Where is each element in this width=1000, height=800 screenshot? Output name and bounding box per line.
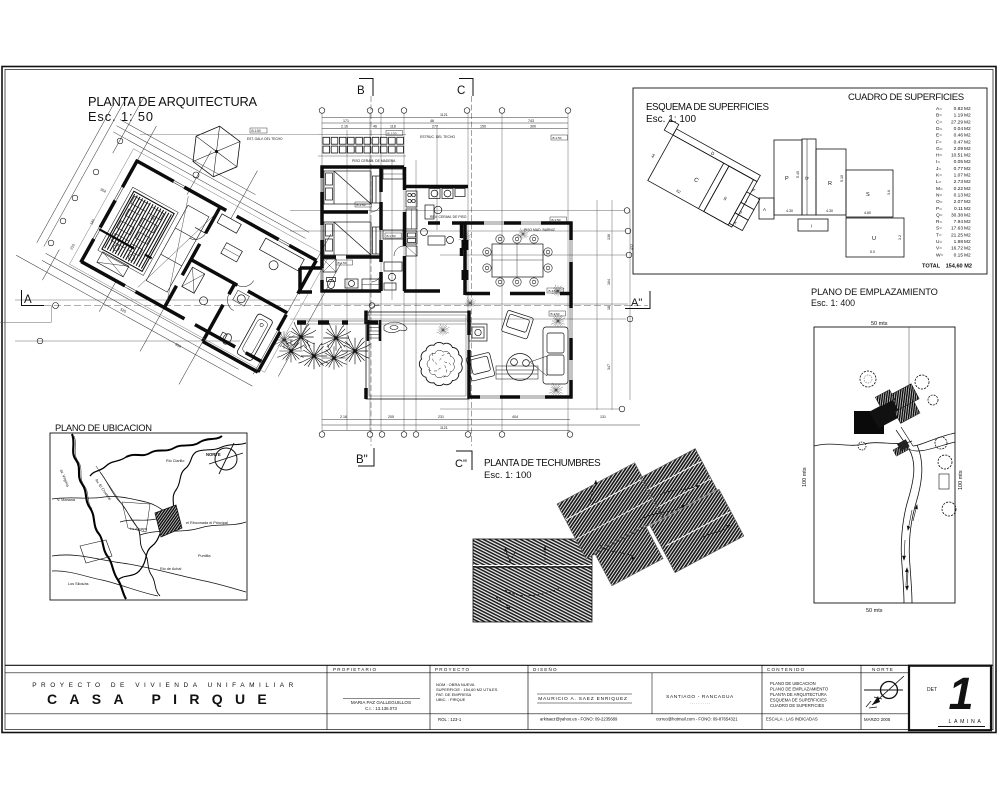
svg-text:correo@hotmail.com - FONO: 0: correo@hotmail.com - FONO: 09-87654321: [656, 717, 738, 722]
svg-text:5.10: 5.10: [840, 175, 844, 182]
svg-text:131: 131: [600, 415, 606, 419]
svg-text:MAURICIO A. SAEZ ENRIQUEZ: MAURICIO A. SAEZ ENRIQUEZ: [538, 696, 628, 702]
svg-text:R=: R=: [936, 219, 942, 225]
svg-text:I: I: [811, 224, 812, 229]
svg-text:REV. CERAM. DE PISO: REV. CERAM. DE PISO: [430, 215, 467, 219]
svg-text:16.72: 16.72: [951, 246, 963, 252]
svg-text:W=: W=: [936, 252, 944, 258]
svg-text:PLANTA DE TECHUMBRES: PLANTA DE TECHUMBRES: [484, 458, 601, 469]
svg-text:S=: S=: [936, 226, 942, 232]
svg-text:SANTIAGO - RANCAGUA: SANTIAGO - RANCAGUA: [666, 694, 734, 700]
svg-text:50 mts: 50 mts: [866, 608, 883, 614]
svg-text:ESCALA : LAS INDICADAS: ESCALA : LAS INDICADAS: [766, 717, 818, 722]
svg-text:1.19: 1.19: [954, 113, 964, 119]
svg-text:LAMINA: LAMINA: [949, 719, 984, 725]
svg-text:ESQUEMA DE SUPERFICIES: ESQUEMA DE SUPERFICIES: [770, 698, 827, 703]
svg-text:231: 231: [438, 415, 444, 419]
svg-text:PLANO DE UBICACION: PLANO DE UBICACION: [55, 422, 152, 433]
svg-text:1121: 1121: [440, 426, 448, 430]
svg-text:2.07: 2.07: [954, 199, 964, 205]
svg-text:DISEÑO: DISEÑO: [533, 666, 558, 672]
svg-text:Lo Arcaya: Lo Arcaya: [130, 527, 148, 531]
svg-text:el Rinconada el Principal: el Rinconada el Principal: [186, 521, 228, 525]
svg-text:M2: M2: [964, 252, 971, 258]
svg-text:1.98: 1.98: [954, 239, 964, 245]
svg-text:150: 150: [480, 124, 486, 128]
svg-text:DET: DET: [927, 687, 937, 693]
svg-text:27.29: 27.29: [951, 119, 963, 125]
svg-text:100 mts: 100 mts: [958, 470, 964, 490]
svg-text:B.1:50: B.1:50: [252, 129, 261, 133]
svg-text:1121: 1121: [440, 113, 448, 117]
svg-text:T=: T=: [936, 232, 942, 238]
svg-text:B.1:50: B.1:50: [388, 132, 397, 136]
svg-text:10.51: 10.51: [951, 153, 963, 159]
svg-text:A: A: [763, 207, 766, 212]
svg-text:B.1:50: B.1:50: [552, 218, 561, 222]
svg-text:I=: I=: [936, 159, 940, 165]
svg-text:M2: M2: [964, 113, 971, 119]
svg-text:M2: M2: [964, 212, 971, 218]
svg-text:0.82: 0.82: [954, 106, 964, 112]
svg-text:S: S: [866, 192, 870, 198]
svg-text:46: 46: [373, 124, 377, 128]
svg-text:D=: D=: [936, 126, 942, 132]
svg-text:Puntilla: Puntilla: [198, 554, 211, 558]
svg-text:PLANO DE EMPLAZAMIENTO: PLANO DE EMPLAZAMIENTO: [770, 687, 829, 692]
svg-text:Esc. 1: 100: Esc. 1: 100: [646, 114, 696, 125]
svg-text:MARIA PAZ GALLEGUILLOS: MARIA PAZ GALLEGUILLOS: [351, 700, 411, 705]
svg-text:M2: M2: [964, 159, 971, 165]
svg-text:Esc. 1: 100: Esc. 1: 100: [484, 470, 532, 481]
svg-text:432: 432: [630, 244, 634, 250]
svg-text:M2: M2: [964, 146, 971, 152]
svg-text:3.2: 3.2: [898, 235, 902, 240]
svg-text:J=: J=: [936, 166, 941, 172]
svg-text:NORTE: NORTE: [872, 667, 894, 672]
svg-text:B": B": [356, 454, 368, 466]
svg-text:B.1:50: B.1:50: [338, 261, 347, 265]
svg-text:1.07: 1.07: [954, 173, 964, 179]
svg-text:4.30: 4.30: [786, 209, 793, 213]
svg-text:M2: M2: [964, 153, 971, 159]
svg-text:CASA PIRQUE: CASA PIRQUE: [47, 691, 279, 707]
svg-text:B: B: [357, 85, 365, 97]
svg-text:P: P: [785, 176, 789, 182]
svg-text:B.1:50: B.1:50: [549, 289, 558, 293]
svg-text:MARZO 2005: MARZO 2005: [864, 717, 891, 722]
svg-text:. . . . . . . . . .: . . . . . . . . . .: [690, 701, 710, 705]
svg-text:B.1:50: B.1:50: [551, 312, 560, 316]
svg-text:NORTE: NORTE: [206, 452, 221, 457]
svg-text:ROL : 123-1: ROL : 123-1: [438, 717, 462, 722]
svg-text:E=: E=: [936, 133, 942, 139]
svg-text:G=: G=: [936, 146, 943, 152]
svg-text:N=: N=: [936, 193, 942, 199]
svg-text:Rio de Achal: Rio de Achal: [160, 567, 181, 571]
svg-text:21.25: 21.25: [951, 232, 963, 238]
svg-text:300: 300: [530, 124, 536, 128]
svg-text:A=: A=: [936, 106, 942, 112]
svg-text:46: 46: [430, 119, 434, 123]
svg-text:0.15: 0.15: [954, 252, 964, 258]
svg-text:M2: M2: [964, 173, 971, 179]
svg-text:C=: C=: [936, 119, 942, 125]
svg-text:1: 1: [948, 668, 973, 719]
svg-text:0.77: 0.77: [954, 166, 964, 172]
svg-text:B.1:50: B.1:50: [553, 136, 562, 140]
svg-text:5.40: 5.40: [796, 171, 800, 178]
svg-text:154,60 M2: 154,60 M2: [946, 264, 972, 270]
svg-text:PROPIETARIO: PROPIETARIO: [333, 667, 377, 672]
svg-text:PLANO DE UBICACION: PLANO DE UBICACION: [770, 681, 816, 686]
svg-text:M2: M2: [964, 179, 971, 185]
svg-text:M=: M=: [936, 186, 943, 192]
svg-text:M2: M2: [964, 226, 971, 232]
svg-text:U=: U=: [936, 239, 942, 245]
svg-text:M2: M2: [964, 206, 971, 212]
svg-text:277: 277: [432, 124, 438, 128]
svg-text:171: 171: [343, 119, 349, 123]
svg-text:M2: M2: [964, 186, 971, 192]
svg-text:C.I. : 13.136.073: C.I. : 13.136.073: [365, 706, 397, 711]
svg-text:Rio Clarillo: Rio Clarillo: [166, 459, 184, 463]
svg-text:PROYECTO: PROYECTO: [435, 667, 470, 672]
svg-text:0.47: 0.47: [954, 139, 964, 145]
svg-text:50 mts: 50 mts: [871, 321, 888, 327]
svg-text:C: C: [457, 85, 465, 97]
svg-text:EST. GALV. DEL TECHO: EST. GALV. DEL TECHO: [247, 137, 283, 141]
svg-text:M2: M2: [964, 119, 971, 125]
svg-text:ESTRUC. DEL TECHO: ESTRUC. DEL TECHO: [420, 135, 455, 139]
svg-text:0.05: 0.05: [954, 159, 964, 165]
svg-text:2.16: 2.16: [341, 124, 348, 128]
svg-text:Esc. 1: 50: Esc. 1: 50: [88, 109, 154, 124]
svg-text:M2: M2: [964, 193, 971, 199]
svg-text:R: R: [828, 181, 832, 187]
svg-text:17.63: 17.63: [951, 226, 963, 232]
svg-text:P=: P=: [936, 206, 942, 212]
svg-text:M2: M2: [964, 166, 971, 172]
svg-text:136: 136: [607, 234, 611, 240]
svg-text:205: 205: [388, 415, 394, 419]
svg-text:CUADRO DE SUPERFICIES: CUADRO DE SUPERFICIES: [770, 703, 824, 708]
svg-text:Los Silos/as: Los Silos/as: [68, 582, 89, 586]
svg-text:B=: B=: [936, 113, 942, 119]
svg-text:2.16: 2.16: [340, 415, 347, 419]
svg-text:V. Manana: V. Manana: [57, 498, 76, 502]
svg-text:5.0: 5.0: [870, 250, 875, 254]
svg-text:L=: L=: [936, 179, 942, 185]
svg-text:TOTAL: TOTAL: [922, 264, 941, 270]
svg-text:V=: V=: [936, 246, 942, 252]
svg-text:4.30: 4.30: [826, 209, 833, 213]
svg-text:M2: M2: [964, 219, 971, 225]
svg-text:4.60: 4.60: [864, 211, 871, 215]
svg-text:Q: Q: [804, 176, 809, 180]
svg-text:A: A: [24, 294, 32, 306]
svg-text:100 mts: 100 mts: [802, 467, 808, 487]
svg-text:Q=: Q=: [936, 212, 943, 218]
svg-text:7.94: 7.94: [954, 219, 964, 225]
svg-text:3.6: 3.6: [887, 190, 891, 195]
svg-text:M2: M2: [964, 133, 971, 139]
svg-text:M2: M2: [964, 239, 971, 245]
svg-text:M2: M2: [964, 199, 971, 205]
svg-text:M2: M2: [964, 232, 971, 238]
svg-text:M2: M2: [964, 139, 971, 145]
svg-text:0.22: 0.22: [954, 186, 964, 192]
svg-text:ESQUEMA DE SUPERFICIES: ESQUEMA DE SUPERFICIES: [646, 102, 769, 113]
svg-text:O=: O=: [936, 199, 943, 205]
svg-text:118: 118: [390, 124, 396, 128]
svg-text:18: 18: [607, 306, 611, 310]
svg-text:404: 404: [512, 415, 518, 419]
svg-text:M2: M2: [964, 106, 971, 112]
svg-text:0.04: 0.04: [954, 126, 964, 132]
svg-text:PLANTA DE ARQUITECTURA: PLANTA DE ARQUITECTURA: [88, 94, 258, 109]
svg-text:2.73: 2.73: [954, 179, 964, 185]
svg-text:0.11: 0.11: [954, 206, 963, 212]
svg-text:K=: K=: [936, 173, 942, 179]
svg-text:PISO MAD. BARNIZ: PISO MAD. BARNIZ: [524, 228, 555, 232]
svg-text:M2: M2: [964, 246, 971, 252]
svg-text:2.09: 2.09: [954, 146, 964, 152]
svg-text:B.1:50: B.1:50: [357, 203, 366, 207]
svg-text:0.46: 0.46: [954, 133, 964, 139]
svg-text:B.1:50: B.1:50: [387, 234, 396, 238]
svg-text:M2: M2: [964, 126, 971, 132]
svg-text:PISO CERAM. DE MADERA: PISO CERAM. DE MADERA: [352, 159, 396, 163]
svg-text:C": C": [455, 458, 467, 470]
svg-text:arkisaez@yahoo.es - FONO: 09: arkisaez@yahoo.es - FONO: 09-2235689: [540, 717, 618, 722]
svg-text:Esc. 1: 400: Esc. 1: 400: [811, 298, 855, 308]
svg-text:CONTENIDO: CONTENIDO: [767, 667, 805, 672]
svg-text:F=: F=: [936, 139, 942, 145]
svg-text:U: U: [872, 236, 876, 242]
svg-text:0.13: 0.13: [954, 193, 964, 199]
svg-text:PLANTA DE ARQUITECTURA: PLANTA DE ARQUITECTURA: [770, 692, 827, 697]
svg-text:164: 164: [607, 279, 611, 285]
svg-text:743: 743: [528, 119, 534, 123]
svg-text:H=: H=: [936, 153, 942, 159]
svg-text:PLANO DE EMPLAZAMIENTO: PLANO DE EMPLAZAMIENTO: [811, 287, 938, 297]
svg-text:UBIC. : PIRQUE: UBIC. : PIRQUE: [436, 697, 466, 702]
svg-text:PROYECTO DE VIVIENDA UNI: PROYECTO DE VIVIENDA UNIFAMILIAR: [32, 682, 298, 689]
svg-text:A": A": [631, 297, 642, 309]
svg-text:CUADRO DE SUPERFICIES: CUADRO DE SUPERFICIES: [848, 92, 964, 103]
svg-text:347: 347: [607, 364, 611, 370]
svg-text:30.38: 30.38: [951, 212, 963, 218]
